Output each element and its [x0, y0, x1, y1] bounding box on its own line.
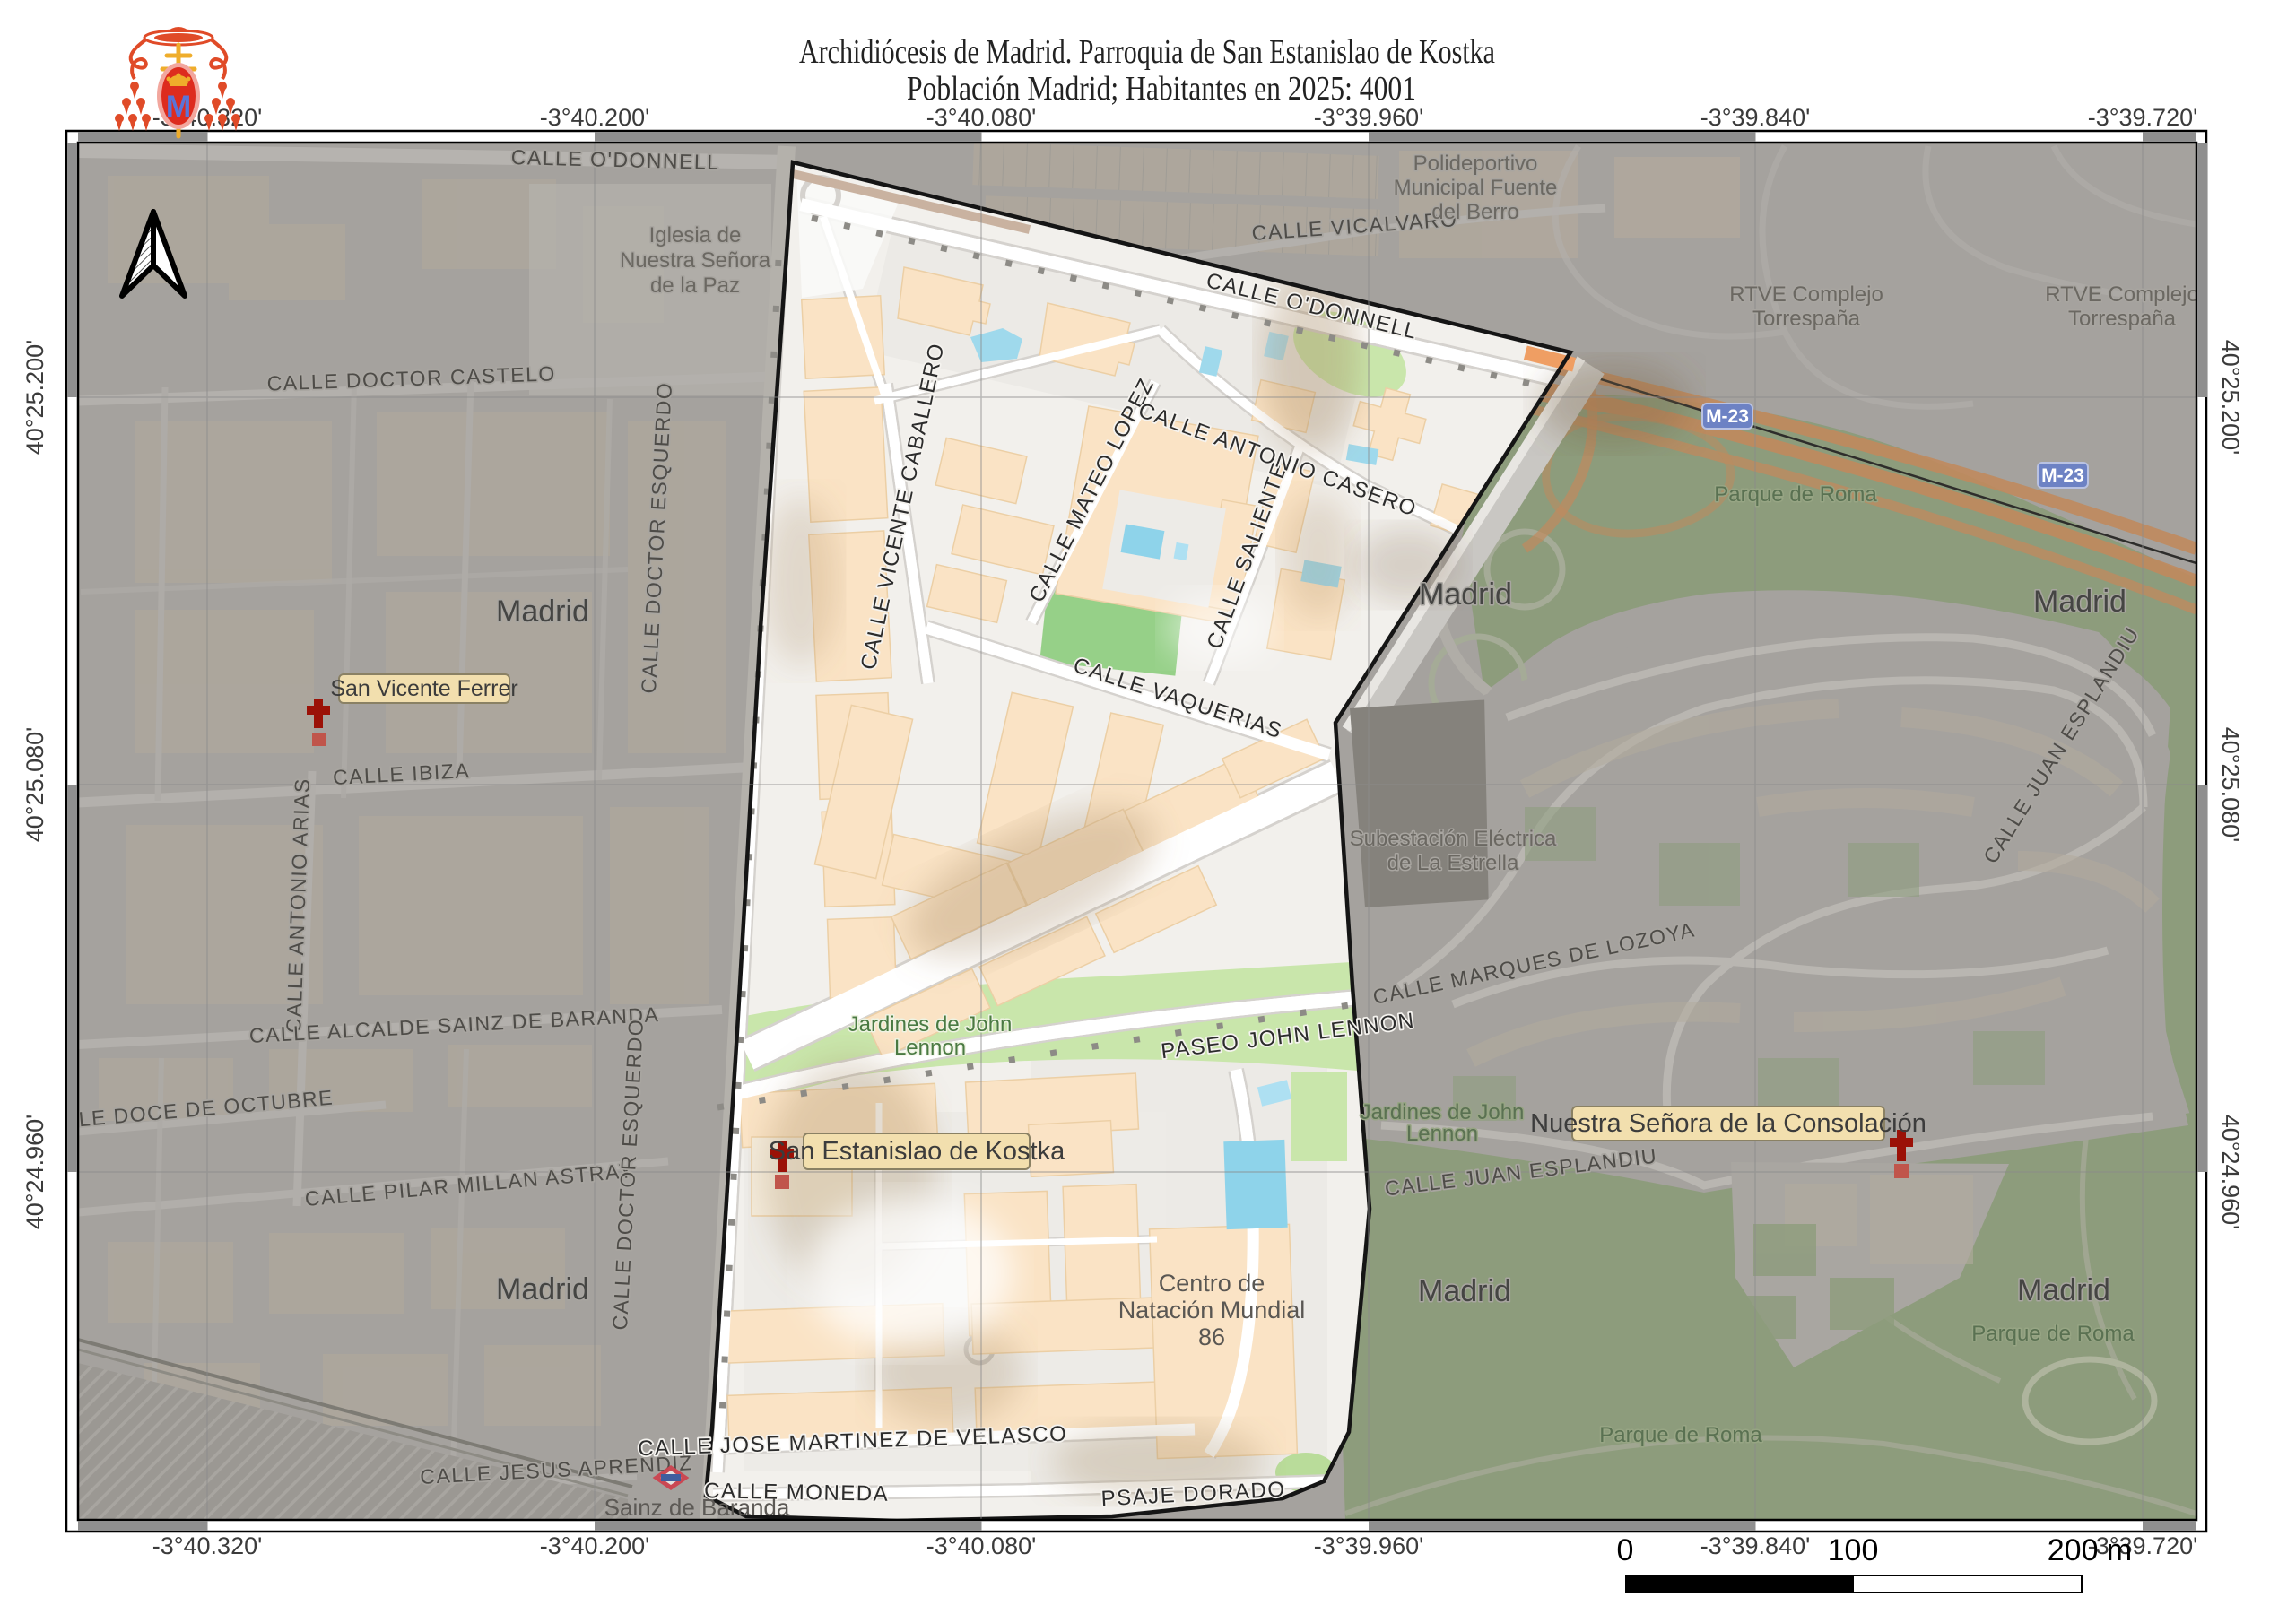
- svg-text:San Estanislao de Kostka: San Estanislao de Kostka: [769, 1137, 1065, 1166]
- svg-text:Subestación Eléctrica: Subestación Eléctrica: [1350, 827, 1557, 851]
- svg-text:de la Paz: de la Paz: [650, 273, 740, 298]
- svg-text:200 m: 200 m: [2048, 1533, 2133, 1567]
- svg-text:-3°40.320': -3°40.320': [152, 1532, 263, 1559]
- svg-text:RTVE Complejo: RTVE Complejo: [2045, 282, 2199, 307]
- svg-text:Municipal Fuente: Municipal Fuente: [1394, 176, 1558, 200]
- svg-text:Parque de Roma: Parque de Roma: [1714, 482, 1877, 507]
- svg-text:-3°40.080': -3°40.080': [926, 104, 1037, 131]
- svg-text:100: 100: [1828, 1533, 1879, 1567]
- svg-text:40°25.080': 40°25.080': [2217, 727, 2244, 843]
- svg-text:Población Madrid; Habitantes e: Población Madrid; Habitantes en 2025: 40…: [907, 70, 1416, 108]
- svg-text:de La Estrella: de La Estrella: [1387, 851, 1519, 875]
- svg-text:Torrespaña: Torrespaña: [1752, 307, 1861, 331]
- svg-text:-3°40.200': -3°40.200': [540, 104, 650, 131]
- svg-text:40°24.960': 40°24.960': [22, 1115, 48, 1230]
- svg-text:-3°39.720': -3°39.720': [2088, 104, 2198, 131]
- svg-text:Parque de Roma: Parque de Roma: [1971, 1322, 2135, 1346]
- svg-text:Polideportivo: Polideportivo: [1413, 152, 1538, 176]
- svg-text:Parque de Roma: Parque de Roma: [1599, 1423, 1762, 1447]
- svg-text:Madrid: Madrid: [1418, 1274, 1511, 1308]
- svg-text:Jardines de John: Jardines de John: [1361, 1100, 1525, 1124]
- svg-text:-3°39.840': -3°39.840': [1700, 104, 1811, 131]
- svg-text:San Vicente Ferrer: San Vicente Ferrer: [330, 676, 517, 701]
- svg-text:40°24.960': 40°24.960': [2217, 1115, 2244, 1230]
- svg-text:40°25.200': 40°25.200': [22, 340, 48, 456]
- svg-text:Madrid: Madrid: [496, 1272, 589, 1306]
- svg-text:RTVE Complejo: RTVE Complejo: [1729, 282, 1883, 307]
- svg-text:Jardines de John: Jardines de John: [848, 1012, 1013, 1037]
- svg-text:Lennon: Lennon: [894, 1036, 966, 1060]
- svg-text:del Berro: del Berro: [1431, 200, 1518, 224]
- svg-text:Nuestra Señora: Nuestra Señora: [620, 248, 771, 273]
- svg-text:Madrid: Madrid: [496, 595, 589, 629]
- svg-text:-3°39.960': -3°39.960': [1314, 104, 1424, 131]
- svg-text:Torrespaña: Torrespaña: [2068, 307, 2177, 331]
- svg-text:Natación Mundial: Natación Mundial: [1118, 1297, 1306, 1324]
- svg-text:Archidiócesis de Madrid. Parro: Archidiócesis de Madrid. Parroquia de Sa…: [799, 33, 1495, 71]
- svg-text:Nuestra Señora de la Consolaci: Nuestra Señora de la Consolación: [1530, 1109, 1926, 1138]
- svg-text:M-23: M-23: [1706, 406, 1749, 427]
- svg-text:-3°39.960': -3°39.960': [1314, 1532, 1424, 1559]
- svg-text:M: M: [166, 90, 191, 124]
- svg-text:86: 86: [1198, 1324, 1225, 1350]
- svg-text:-3°40.200': -3°40.200': [540, 1532, 650, 1559]
- svg-text:40°25.200': 40°25.200': [2217, 340, 2244, 456]
- svg-text:Madrid: Madrid: [1419, 577, 1512, 612]
- svg-text:Centro de: Centro de: [1159, 1270, 1265, 1297]
- svg-text:Madrid: Madrid: [2017, 1273, 2110, 1307]
- svg-text:M-23: M-23: [2041, 465, 2084, 486]
- svg-text:40°25.080': 40°25.080': [22, 727, 48, 843]
- svg-text:Lennon: Lennon: [1406, 1122, 1478, 1146]
- svg-text:Sainz de Baranda: Sainz de Baranda: [604, 1494, 790, 1521]
- svg-text:Iglesia de: Iglesia de: [649, 223, 742, 247]
- svg-text:0: 0: [1617, 1533, 1634, 1567]
- svg-text:-3°39.840': -3°39.840': [1700, 1532, 1811, 1559]
- svg-text:-3°40.080': -3°40.080': [926, 1532, 1037, 1559]
- svg-text:Madrid: Madrid: [2033, 585, 2126, 619]
